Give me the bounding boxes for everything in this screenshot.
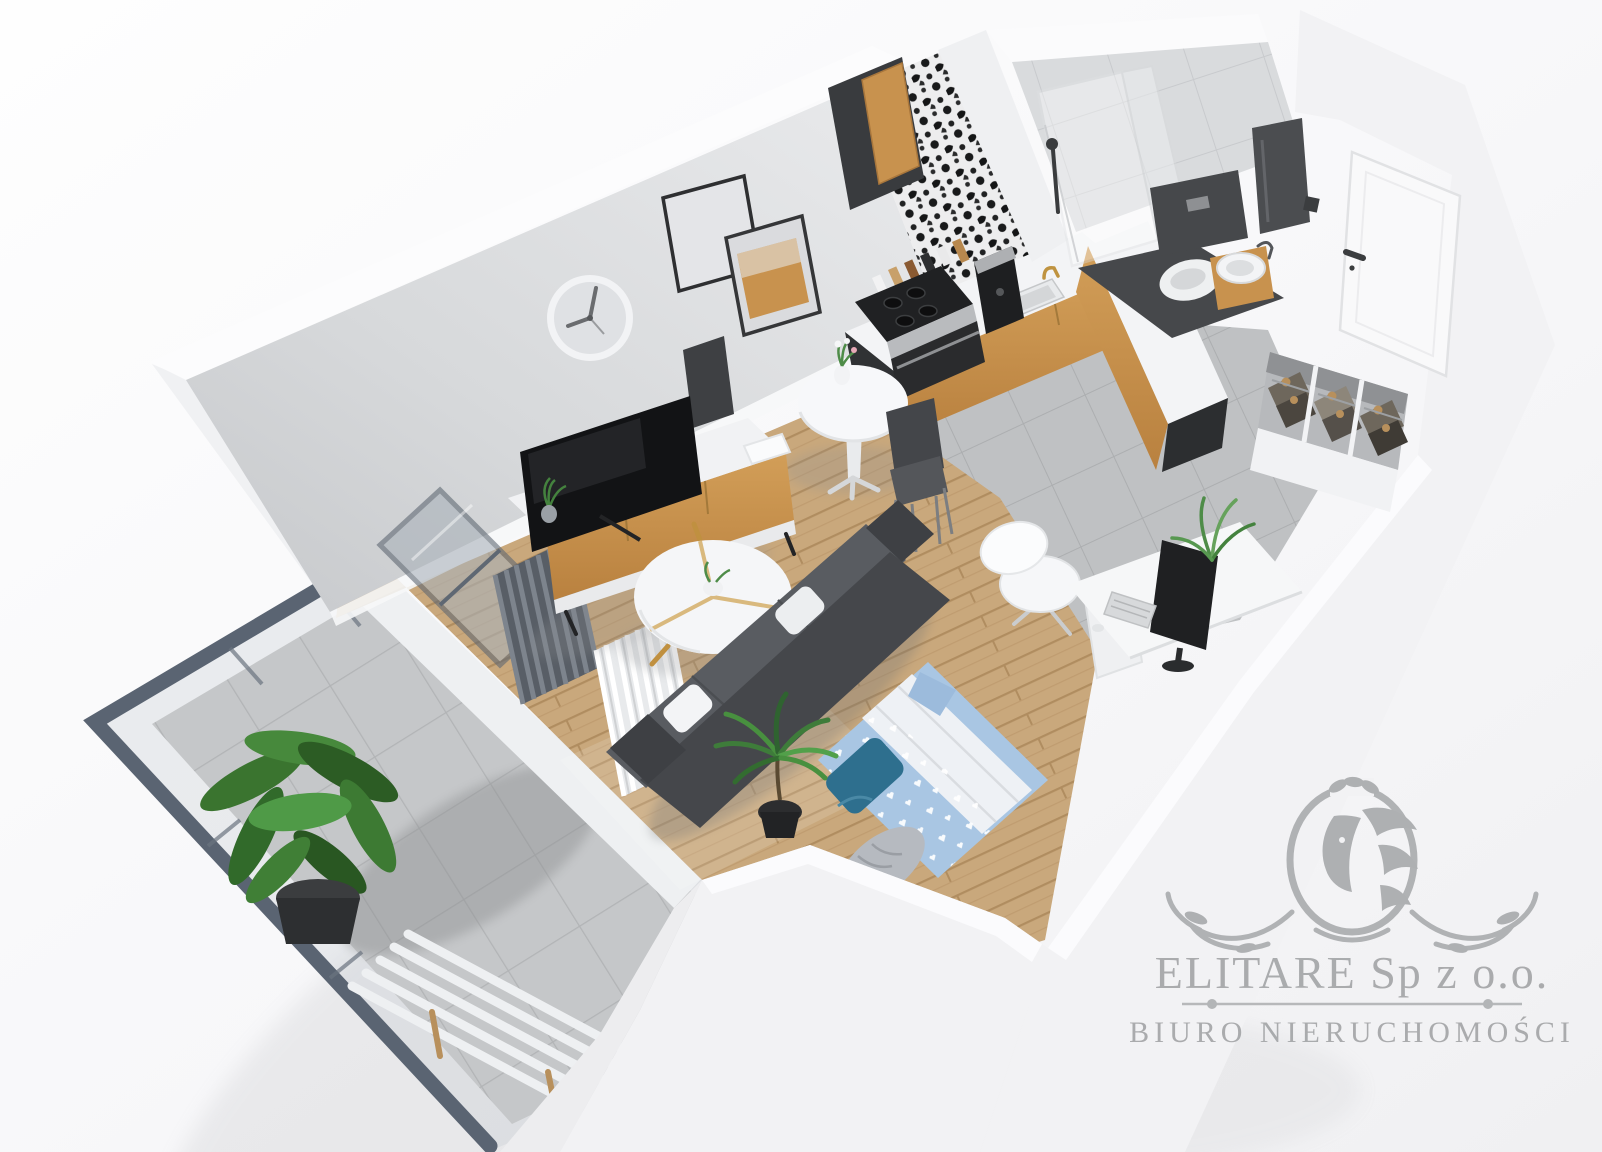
watermark-company: ELITARE Sp z o.o. [1155,947,1549,998]
mirror-panel [1252,118,1310,234]
wall-clock [547,275,633,361]
door-keyhole [1349,265,1354,270]
floorplan-render-canvas: ELITARE Sp z o.o. BIURO NIERUCHOMOŚCI [0,0,1602,1152]
mouse [1092,624,1104,632]
picture-frame-wood [726,216,820,335]
watermark-tagline: BIURO NIERUCHOMOŚCI [1129,1016,1575,1049]
apartment-3d-scene: ELITARE Sp z o.o. BIURO NIERUCHOMOŚCI [0,0,1602,1152]
plant-pot-body [276,898,360,944]
intercom-panel [1303,196,1320,213]
